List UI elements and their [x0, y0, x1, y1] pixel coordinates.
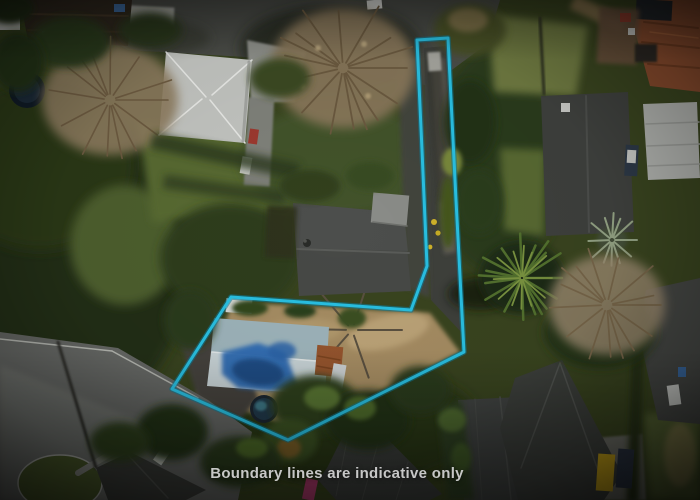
top-fade-overlay: [0, 0, 700, 500]
aerial-listing-photo: Boundary lines are indicative only: [0, 0, 700, 500]
boundary-disclaimer-text: Boundary lines are indicative only: [210, 465, 464, 482]
aerial-photo-canvas: [0, 0, 700, 500]
